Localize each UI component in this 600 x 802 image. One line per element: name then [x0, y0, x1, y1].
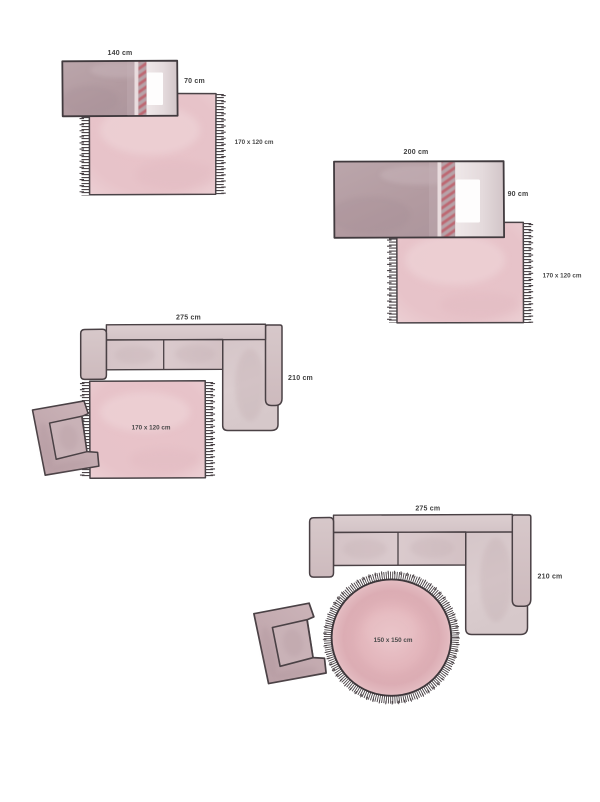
svg-text:90 cm: 90 cm [508, 191, 529, 198]
svg-text:200 cm: 200 cm [404, 149, 429, 156]
svg-text:275 cm: 275 cm [415, 506, 440, 513]
svg-text:170 x 120 cm: 170 x 120 cm [132, 425, 171, 432]
svg-text:210 cm: 210 cm [288, 375, 313, 382]
svg-text:70 cm: 70 cm [184, 78, 205, 85]
svg-text:275 cm: 275 cm [176, 315, 201, 322]
svg-text:210 cm: 210 cm [538, 574, 563, 581]
svg-text:170 x 120 cm: 170 x 120 cm [543, 273, 582, 280]
svg-text:150 x 150 cm: 150 x 150 cm [374, 637, 413, 644]
svg-text:140 cm: 140 cm [108, 50, 133, 57]
svg-text:170 x 120 cm: 170 x 120 cm [235, 139, 274, 146]
